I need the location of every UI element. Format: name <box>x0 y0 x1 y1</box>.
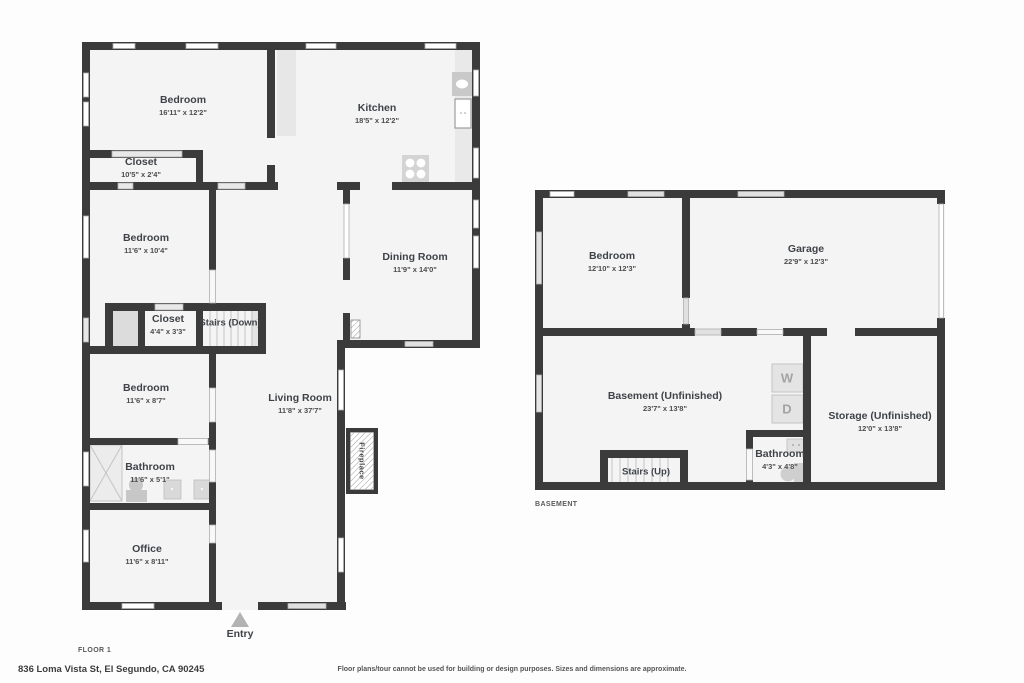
fireplace-label: Fireplace <box>358 442 367 479</box>
shower-icon <box>90 445 122 501</box>
stairs-down-label: Stairs (Down) <box>199 318 260 329</box>
floorplan-drawing <box>0 0 1024 683</box>
floorplan-image: Bedroom 16'11" x 12'2" Kitchen 18'5" x 1… <box>0 0 1024 683</box>
washer-letter: W <box>781 371 793 386</box>
basement-plan-tag: BASEMENT <box>535 501 577 508</box>
fridge-icon <box>455 99 471 128</box>
kitchen-nook <box>277 48 296 136</box>
floor1-plan <box>82 42 480 627</box>
floor1-plan-tag: FLOOR 1 <box>78 647 111 654</box>
basement-interior <box>535 190 945 490</box>
stove-icon <box>402 155 429 182</box>
sink-icon <box>787 439 804 452</box>
disclaimer-text: Floor plans/tour cannot be used for buil… <box>338 666 687 673</box>
entry-label: Entry <box>227 628 254 640</box>
property-address: 836 Loma Vista St, El Segundo, CA 90245 <box>18 664 204 675</box>
floor-vent <box>351 320 360 338</box>
basement-plan <box>535 190 945 490</box>
understair-space <box>113 311 138 346</box>
stairs-up-label: Stairs (Up) <box>622 467 670 478</box>
kitchen-counter <box>452 50 472 183</box>
dryer-letter: D <box>782 402 791 417</box>
entry-arrow-icon <box>231 612 249 627</box>
